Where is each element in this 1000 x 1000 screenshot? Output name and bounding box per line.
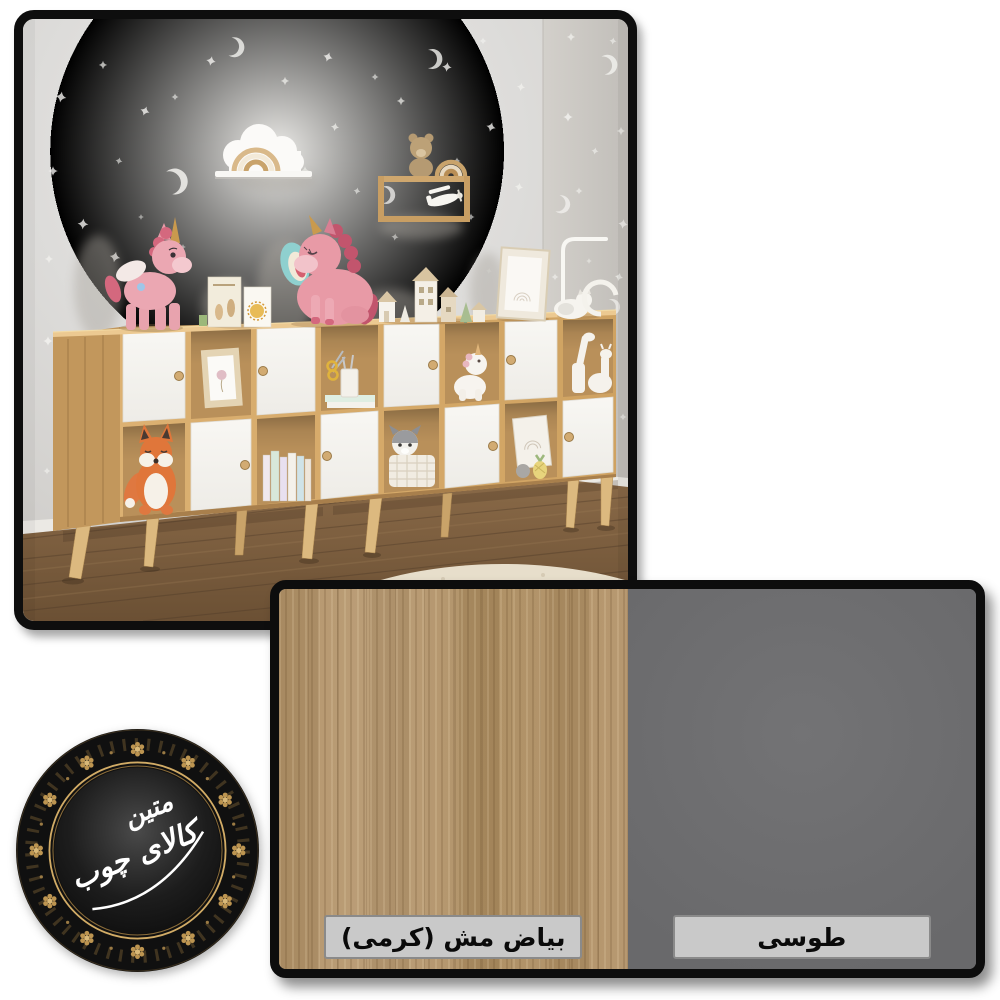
- swatch-label-wood: بیاض مش (کرمی): [324, 915, 582, 959]
- room-scene: [23, 19, 628, 621]
- cabinet-side-panel: [53, 327, 120, 531]
- room-photo-frame: [14, 10, 637, 630]
- product-image: بیاض مش (کرمی) طوسی: [0, 0, 1000, 1000]
- swatch-label-wood-text: بیاض مش (کرمی): [341, 923, 566, 952]
- brand-logo: متین کالای چوب: [15, 728, 260, 973]
- color-swatch-panel: بیاض مش (کرمی) طوسی: [270, 580, 985, 978]
- swatch-wood: بیاض مش (کرمی): [279, 589, 628, 969]
- swatch-label-gray: طوسی: [673, 915, 931, 959]
- leaning-frame: [497, 247, 550, 320]
- swatch-label-gray-text: طوسی: [757, 923, 846, 952]
- swatch-gray: طوسی: [628, 589, 977, 969]
